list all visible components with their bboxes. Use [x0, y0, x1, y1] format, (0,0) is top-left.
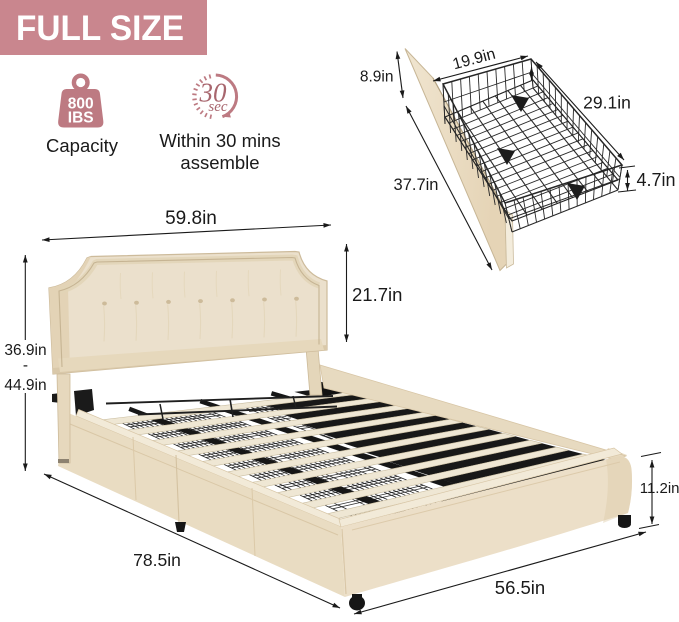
svg-text:78.5in: 78.5in: [133, 550, 181, 570]
svg-text:8.9in: 8.9in: [360, 68, 394, 85]
svg-text:-: -: [23, 357, 28, 374]
svg-text:assemble: assemble: [180, 152, 259, 173]
svg-text:59.8in: 59.8in: [165, 208, 217, 229]
svg-text:21.7in: 21.7in: [352, 284, 402, 305]
svg-text:IBS: IBS: [68, 110, 94, 127]
svg-text:56.5in: 56.5in: [495, 577, 545, 598]
svg-text:37.7in: 37.7in: [394, 176, 439, 194]
svg-text:sec: sec: [208, 99, 227, 115]
svg-text:11.2in: 11.2in: [640, 480, 679, 497]
svg-text:44.9in: 44.9in: [4, 377, 46, 394]
svg-text:29.1in: 29.1in: [583, 93, 631, 113]
svg-text:Within 30 mins: Within 30 mins: [159, 130, 280, 151]
svg-text:FULL SIZE: FULL SIZE: [16, 9, 184, 48]
svg-text:4.7in: 4.7in: [636, 170, 675, 190]
svg-text:Capacity: Capacity: [46, 135, 119, 156]
